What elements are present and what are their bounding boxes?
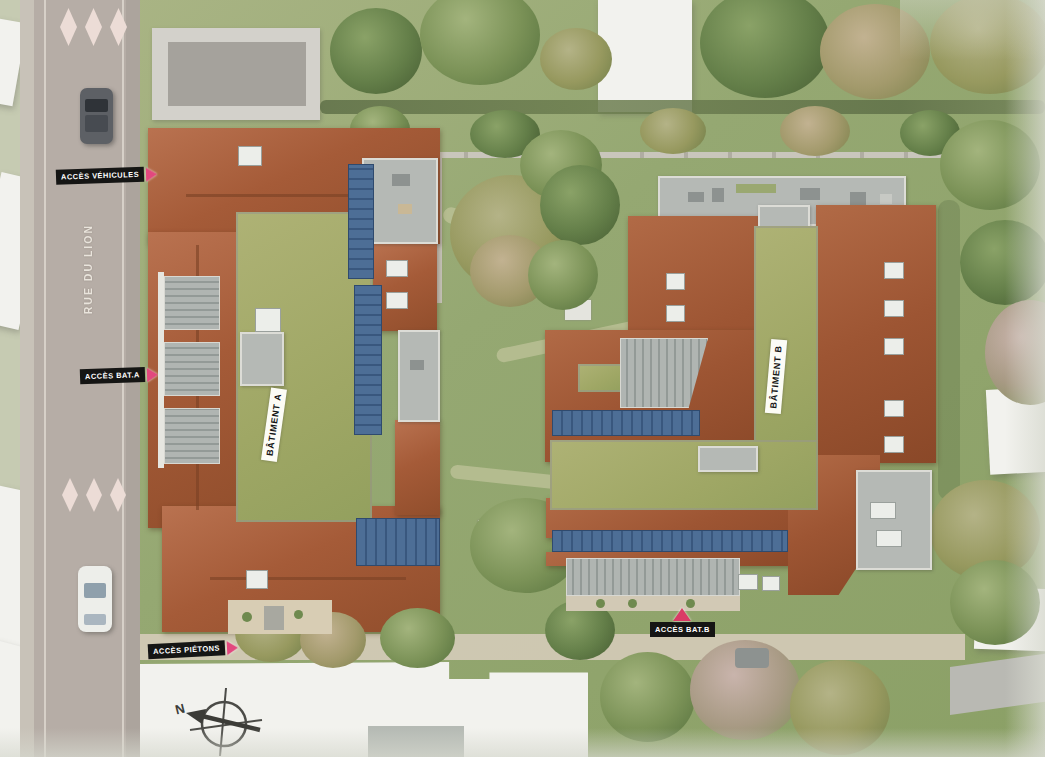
car-icon	[80, 88, 113, 144]
building-a-roof-east	[373, 243, 437, 331]
terrace-furniture	[392, 174, 410, 186]
solar-panels	[354, 285, 382, 435]
building-a-balcony	[164, 342, 220, 396]
triangle-arrow-right-icon	[227, 640, 239, 655]
neighbor-building	[152, 28, 320, 120]
tree	[820, 4, 930, 99]
solar-panels	[348, 164, 374, 279]
building-b-skylight-gray	[698, 446, 758, 472]
entrance-door	[264, 606, 284, 630]
triangle-arrow-right-icon	[146, 167, 157, 181]
building-a-skylight	[386, 260, 408, 277]
tree	[380, 608, 455, 668]
tree	[540, 165, 620, 245]
planter	[294, 610, 303, 619]
building-b-balcony	[566, 558, 740, 596]
triangle-arrow-up-icon	[673, 608, 691, 621]
street-name-label: RUE DU LION	[82, 224, 94, 314]
access-bat-a-label: ACCÈS BAT.A	[80, 367, 145, 384]
planter	[628, 599, 637, 608]
car-rear-window	[84, 614, 106, 625]
terrace-planter	[736, 184, 776, 193]
road-line-left	[44, 0, 46, 757]
building-b-green-roof-patch	[578, 364, 622, 392]
building-b-skylight	[876, 530, 902, 547]
car-roof	[85, 115, 108, 132]
access-bat-b-tag: ACCÈS BAT.B	[650, 608, 715, 637]
site-plan: RUE DU LION	[0, 0, 1045, 757]
car-icon	[78, 566, 112, 632]
building-b-roof-east	[816, 205, 936, 463]
building-a-terrace	[398, 330, 440, 422]
building-a-courtyard-shed	[240, 332, 284, 386]
car-windshield	[85, 99, 108, 112]
neighbor-building	[598, 0, 692, 112]
tree	[330, 8, 422, 94]
terrace-furniture	[800, 188, 820, 200]
tree	[640, 108, 706, 154]
west-sidewalk	[20, 0, 34, 757]
planter	[596, 599, 605, 608]
north-compass-icon: N	[174, 686, 266, 757]
building-a-roof-east	[395, 420, 440, 515]
building-b-skylight	[884, 300, 904, 317]
building-a-skylight	[238, 146, 262, 166]
building-b-skylight	[666, 305, 685, 322]
building-a-balcony	[164, 276, 220, 330]
tree	[950, 560, 1040, 645]
solar-panels	[552, 410, 700, 436]
solar-panels	[552, 530, 788, 552]
neighbor-building-skylight	[368, 726, 464, 757]
tree	[790, 660, 890, 755]
tree	[528, 240, 598, 310]
terrace-furniture	[398, 204, 412, 214]
terrace-furniture	[880, 194, 892, 204]
tree	[600, 652, 695, 742]
building-b-green-roof-south	[550, 440, 818, 510]
tree	[930, 0, 1045, 94]
terrace-furniture	[712, 188, 724, 202]
tree	[960, 220, 1045, 305]
building-b-terrace	[856, 470, 932, 570]
building-b-skylight	[884, 436, 904, 453]
building-b-skylight	[666, 273, 685, 290]
building-b-skylight	[870, 502, 896, 519]
building-a-skylight	[255, 308, 281, 332]
building-a-skylight	[386, 292, 408, 309]
building-a-ridge	[210, 577, 406, 580]
building-a-skylight	[246, 570, 268, 589]
access-bat-b-label: ACCÈS BAT.B	[650, 622, 715, 637]
building-a-entrance	[228, 600, 332, 634]
access-vehicles-label: ACCÈS VÉHICULES	[56, 167, 144, 185]
garden-furniture	[735, 648, 769, 668]
solar-panels	[356, 518, 440, 566]
planter	[242, 612, 252, 622]
tree	[780, 106, 850, 156]
tree	[940, 120, 1040, 210]
triangle-arrow-right-icon	[147, 367, 158, 381]
compass-north-letter: N	[174, 701, 186, 718]
building-b-panel	[762, 576, 780, 591]
garden-hedge-right	[938, 200, 960, 500]
terrace-furniture	[410, 360, 424, 370]
planter	[686, 599, 695, 608]
building-b-skylight	[884, 262, 904, 279]
building-b-skylight	[884, 400, 904, 417]
terrace-furniture	[688, 192, 704, 202]
building-b-skylight	[884, 338, 904, 355]
building-a-balcony	[164, 408, 220, 464]
neighbor-building-roof	[168, 42, 306, 106]
terrace-furniture	[850, 192, 866, 205]
car-windshield	[84, 583, 106, 598]
tree	[540, 28, 612, 90]
building-b-panel	[738, 574, 758, 590]
access-bat-a-tag: ACCÈS BAT.A	[80, 367, 158, 385]
